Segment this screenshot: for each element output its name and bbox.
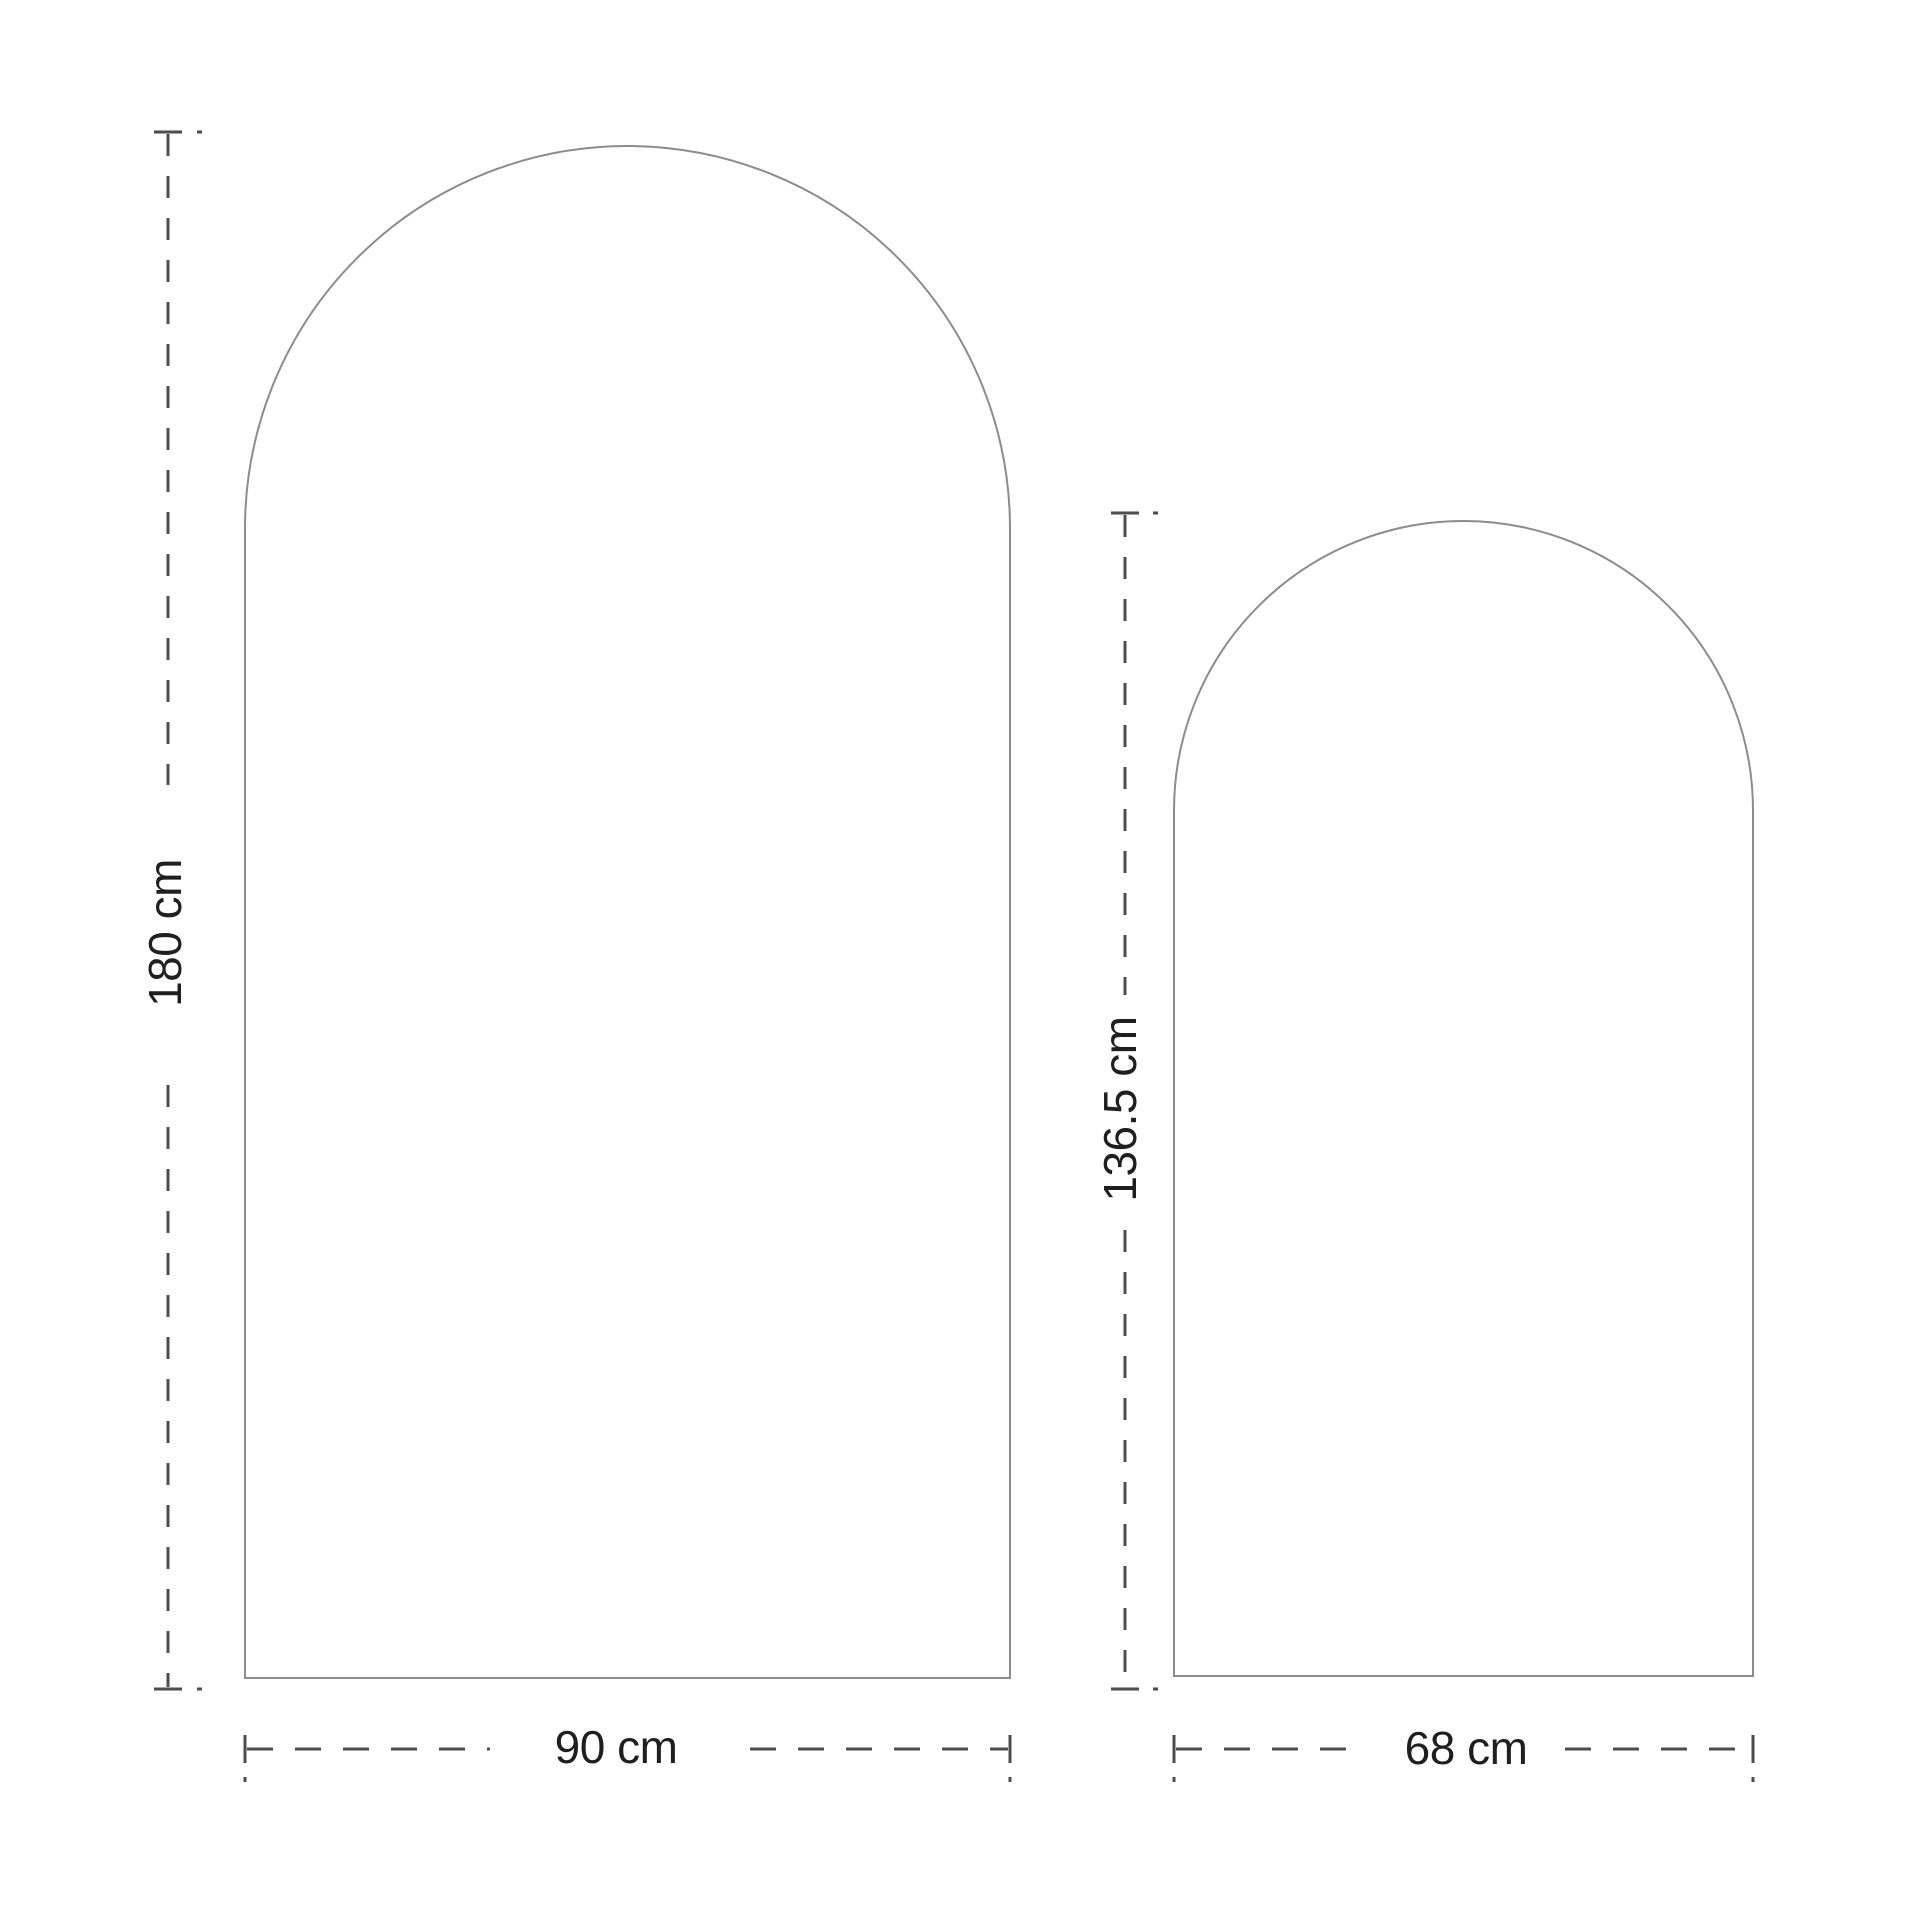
- diagram-shapes-svg: [0, 0, 1920, 1920]
- small-arch-outline: [1174, 521, 1753, 1676]
- large-arch-height-label: 180 cm: [142, 859, 188, 1007]
- large-arch-width-label: 90 cm: [555, 1724, 678, 1770]
- small-arch-width-label: 68 cm: [1405, 1725, 1528, 1771]
- small-arch-height-label: 136.5 cm: [1097, 1016, 1143, 1201]
- large-arch-outline: [245, 146, 1010, 1678]
- dimension-diagram: 180 cm 136.5 cm 90 cm 68 cm: [0, 0, 1920, 1920]
